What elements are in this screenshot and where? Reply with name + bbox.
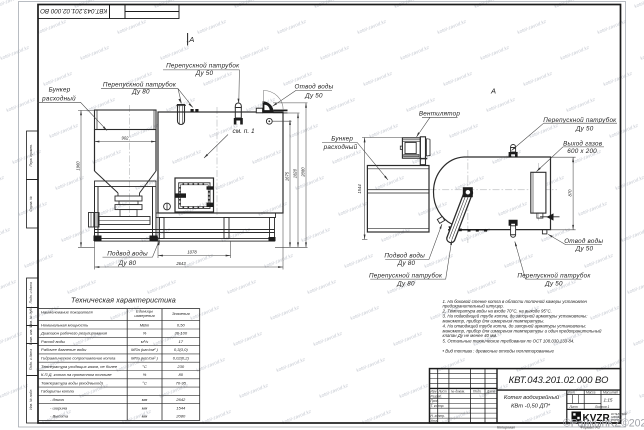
svg-text:Гидравлическое сопротивление к: Гидравлическое сопротивление котла: [41, 356, 116, 361]
svg-text:2080: 2080: [175, 414, 186, 419]
svg-text:Утв.: Утв.: [431, 419, 438, 423]
svg-text:600 х 200: 600 х 200: [567, 148, 597, 155]
svg-text:Изм: Изм: [431, 389, 438, 393]
svg-text:0,3(3,0): 0,3(3,0): [174, 347, 189, 352]
svg-text:0,50: 0,50: [177, 322, 186, 327]
svg-text:Пров.: Пров.: [431, 399, 440, 403]
svg-text:измерения: измерения: [134, 313, 155, 318]
svg-text:Перепускной патрубок: Перепускной патрубок: [517, 271, 591, 279]
svg-text:Отвод воды: Отвод воды: [295, 83, 334, 91]
svg-text:МПа (кгс/см² ): МПа (кгс/см² ): [131, 356, 158, 361]
svg-text:Перепускной патрубок: Перепускной патрубок: [369, 271, 443, 279]
svg-text:Ду 50: Ду 50: [304, 93, 323, 100]
svg-text:Подп. и дата: Подп. и дата: [29, 349, 33, 370]
svg-text:Перв. примен.: Перв. примен.: [29, 144, 33, 167]
svg-text:Масштаб: Масштаб: [603, 391, 618, 395]
svg-text:Перепускной патрубок: Перепускной патрубок: [166, 62, 240, 70]
svg-text:©РайкынKZ©2021: ©РайкынKZ©2021: [563, 418, 644, 430]
svg-text:230: 230: [176, 364, 185, 369]
svg-text:- ширина: - ширина: [50, 405, 68, 410]
svg-text:Температура уходящих газов, не: Температура уходящих газов, не более: [41, 364, 118, 369]
svg-text:КВТ.043.201.02.000 ВО: КВТ.043.201.02.000 ВО: [40, 7, 107, 14]
svg-text:№ докум.: № докум.: [451, 389, 465, 393]
svg-text:Ду 80: Ду 80: [131, 89, 150, 96]
svg-text:°С: °С: [142, 380, 147, 385]
svg-text:КВт -0,50 ДП*: КВт -0,50 ДП*: [511, 404, 551, 410]
svg-text:мм: мм: [142, 414, 148, 419]
svg-text:Н. контр.: Н. контр.: [431, 414, 445, 418]
svg-text:1820: 1820: [292, 168, 297, 178]
svg-text:Копировал: Копировал: [497, 425, 515, 429]
svg-text:5. Остальные технические треб: 5. Остальные технические требования по О…: [443, 338, 575, 343]
svg-text:Рабочее давление воды: Рабочее давление воды: [41, 347, 86, 352]
svg-text:- длина: - длина: [50, 397, 64, 402]
svg-text:80: 80: [179, 372, 184, 377]
svg-text:Температура воды (вход/выход): Температура воды (вход/выход): [41, 380, 103, 385]
svg-text:Подп. и дата: Подп. и дата: [29, 282, 33, 303]
svg-text:Значения: Значения: [172, 311, 191, 316]
svg-text:Отвод воды: Отвод воды: [564, 237, 603, 245]
svg-text:Перепускной патрубок: Перепускной патрубок: [543, 116, 617, 124]
svg-text:А: А: [188, 35, 194, 44]
svg-text:°С: °С: [142, 364, 147, 369]
svg-text:Перепускной патрубок: Перепускной патрубок: [103, 81, 177, 89]
svg-text:Наименование показателя: Наименование показателя: [41, 310, 93, 315]
svg-text:Ду 50: Ду 50: [575, 125, 594, 132]
svg-text:см. п. 1: см. п. 1: [232, 128, 255, 135]
svg-text:30-100: 30-100: [174, 331, 187, 336]
svg-text:мм: мм: [142, 405, 148, 410]
svg-text:Ду 50: Ду 50: [195, 70, 214, 77]
svg-text:1:15: 1:15: [604, 398, 613, 403]
svg-text:Лист: Лист: [438, 389, 448, 393]
svg-text:Техническая характеристика: Техническая характеристика: [71, 296, 176, 305]
svg-text:расходный: расходный: [323, 143, 358, 151]
svg-text:Вентилятор: Вентилятор: [419, 111, 460, 118]
svg-text:902: 902: [122, 136, 130, 141]
svg-text:К.П.Д. котла на проектном топл: К.П.Д. котла на проектном топливе: [41, 372, 112, 377]
svg-text:Бункер: Бункер: [331, 136, 353, 143]
svg-text:Масса: Масса: [586, 391, 596, 395]
svg-text:Разраб.: Разраб.: [431, 394, 443, 398]
svg-text:Ду 80: Ду 80: [397, 260, 416, 267]
svg-text:Лит.: Лит.: [567, 391, 576, 395]
svg-text:Ду 80: Ду 80: [118, 260, 137, 267]
svg-text:Расход воды: Расход воды: [41, 339, 65, 344]
svg-text:Бункер: Бункер: [49, 87, 71, 94]
svg-text:Ду 50: Ду 50: [575, 246, 594, 253]
svg-text:Ду 80: Ду 80: [396, 281, 415, 288]
svg-text:Котел водогрейный: Котел водогрейный: [504, 394, 560, 401]
svg-text:Лист: Лист: [569, 405, 579, 409]
svg-text:Листов 1: Листов 1: [594, 405, 609, 409]
svg-text:Габариты котла: Габариты котла: [41, 389, 75, 394]
svg-text:2643: 2643: [175, 261, 186, 266]
svg-text:- Высота: - Высота: [50, 414, 69, 419]
svg-text:расходный: расходный: [41, 95, 76, 103]
svg-text:1675: 1675: [285, 171, 290, 181]
svg-text:Справ. №: Справ. №: [29, 196, 33, 212]
svg-text:Номинальная мощность: Номинальная мощность: [41, 322, 88, 327]
svg-text:КВТ.043.201.02.000 ВО: КВТ.043.201.02.000 ВО: [509, 374, 609, 385]
svg-text:Т. контр.: Т. контр.: [431, 404, 445, 408]
svg-text:Подп.: Подп.: [473, 389, 482, 393]
svg-text:МПа (кгс/см² ): МПа (кгс/см² ): [131, 347, 158, 352]
svg-text:м³/ч: м³/ч: [141, 339, 149, 344]
svg-text:МВт: МВт: [140, 322, 150, 327]
svg-text:1544: 1544: [176, 405, 186, 410]
svg-text:• Вид топлива : древесные отх: • Вид топлива : древесные отходы пеллети…: [443, 349, 555, 354]
svg-text:1544: 1544: [357, 184, 362, 194]
svg-text:Дата: Дата: [486, 389, 496, 393]
svg-text:1078: 1078: [187, 250, 197, 255]
svg-text:Взам. инв. №: Взам. инв. №: [29, 324, 33, 345]
svg-text:мм: мм: [142, 397, 148, 402]
svg-text:Подвод воды: Подвод воды: [384, 252, 425, 260]
svg-text:Диапазон рабочего регулировани: Диапазон рабочего регулирования: [40, 331, 108, 336]
svg-text:Выход газов: Выход газов: [563, 139, 603, 147]
svg-text:А: А: [490, 87, 496, 96]
svg-text:2642: 2642: [175, 397, 186, 402]
svg-text:Ду 50: Ду 50: [544, 281, 563, 288]
svg-text:%: %: [143, 331, 147, 336]
svg-text:70-95: 70-95: [176, 380, 187, 385]
svg-text:%: %: [143, 372, 147, 377]
svg-text:1960: 1960: [75, 161, 80, 171]
svg-text:17: 17: [179, 339, 184, 344]
svg-text:0,02(0,2): 0,02(0,2): [173, 356, 190, 361]
svg-text:Инв. № дубл.: Инв. № дубл.: [29, 306, 33, 327]
svg-text:2080: 2080: [300, 167, 305, 178]
svg-text:Подвод воды: Подвод воды: [107, 249, 148, 257]
svg-text:Инв. № подл.: Инв. № подл.: [29, 389, 33, 410]
svg-text:870: 870: [567, 189, 572, 197]
